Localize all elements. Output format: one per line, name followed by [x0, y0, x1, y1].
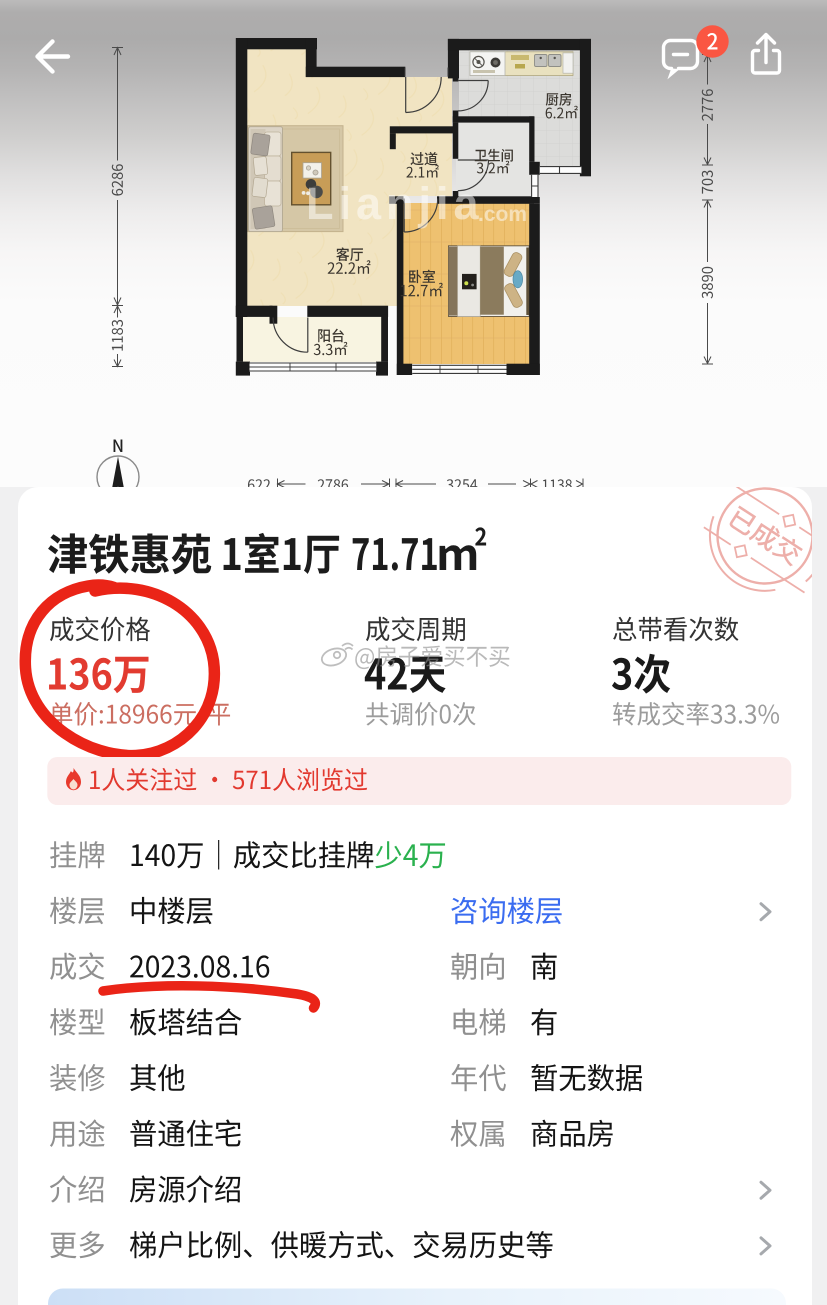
- svg-text:Lianjia: Lianjia: [306, 178, 484, 229]
- svg-text:.com: .com: [478, 203, 527, 226]
